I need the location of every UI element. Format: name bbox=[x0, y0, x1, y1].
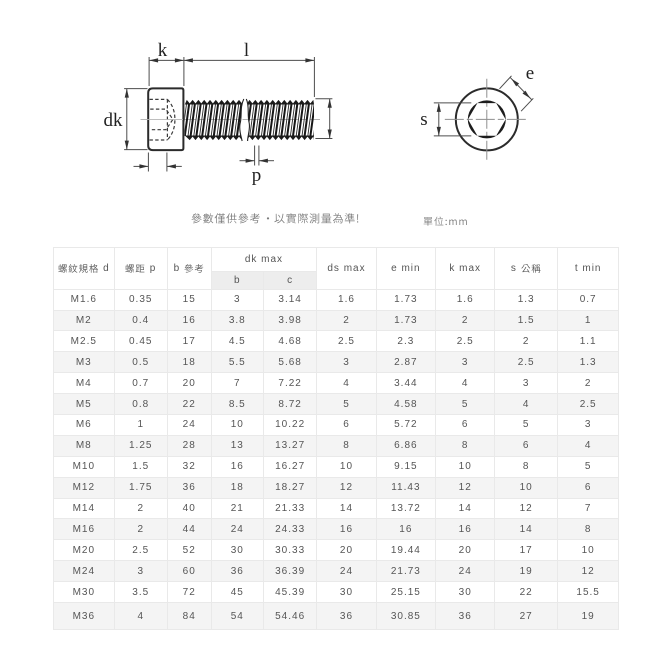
svg-text:p: p bbox=[252, 165, 262, 186]
svg-text:k: k bbox=[158, 40, 168, 61]
svg-text:e: e bbox=[526, 63, 534, 84]
svg-text:l: l bbox=[244, 40, 249, 61]
svg-text:dk: dk bbox=[104, 110, 124, 131]
svg-text:s: s bbox=[420, 109, 427, 130]
